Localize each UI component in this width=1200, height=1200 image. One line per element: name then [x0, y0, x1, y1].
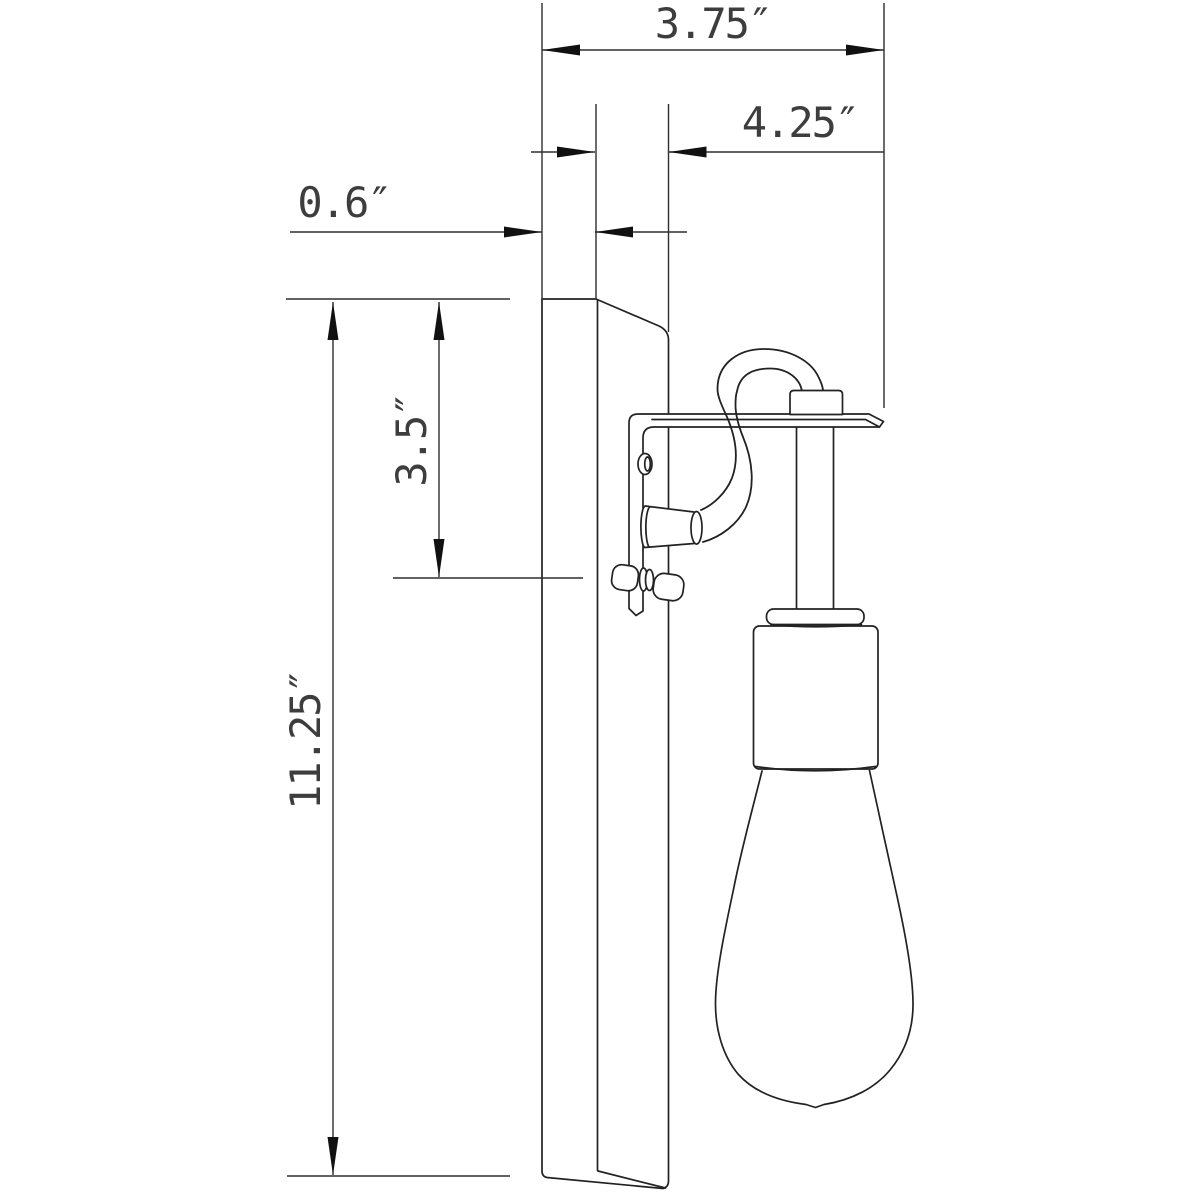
- edison-bulb: [715, 771, 913, 1108]
- dimension-projection: 4.25″: [531, 98, 884, 158]
- technical-drawing-page: 3.75″ 4.25″ 0.6″ 3.5″: [0, 0, 1200, 1200]
- ferrule-body: [641, 506, 699, 548]
- right-screw: [652, 572, 685, 602]
- left-screw: [610, 564, 639, 592]
- socket-stem: [797, 428, 834, 610]
- cord-grip-block: [790, 391, 843, 415]
- wall-backplate: [542, 299, 669, 1189]
- cord-outer-edge: [701, 349, 823, 510]
- arrowhead-up: [434, 302, 445, 340]
- dimension-top-to-bracket: 3.5″: [387, 302, 445, 577]
- arrowhead-down: [434, 539, 445, 577]
- dimension-label-backplate-thickness: 0.6″: [297, 178, 390, 227]
- sconce-fixture: [542, 299, 913, 1189]
- looped-power-cord: [701, 349, 823, 542]
- dimension-label-projection: 4.25″: [742, 98, 858, 147]
- arrowhead-up: [328, 302, 339, 340]
- socket-flange: [767, 609, 865, 625]
- arrowhead-down: [328, 1137, 339, 1175]
- dimension-backplate-thickness: 0.6″: [290, 178, 687, 238]
- upper-screw-detail: [645, 457, 651, 471]
- ferrule-mouth: [691, 512, 702, 545]
- wall-sconce-dimension-drawing: 3.75″ 4.25″ 0.6″ 3.5″: [0, 0, 1200, 1200]
- arrowhead-right: [846, 45, 884, 56]
- arrowhead-left: [504, 227, 542, 238]
- dimension-label-top-to-bracket: 3.5″: [387, 393, 436, 486]
- screw-washer-inner: [646, 570, 654, 591]
- arrowhead-right: [595, 227, 633, 238]
- arrowhead-left: [542, 45, 580, 56]
- cord-ferrule: [641, 506, 702, 548]
- dimension-backplate-height: 11.25″: [281, 302, 339, 1175]
- dimension-label-total-depth: 3.75″: [655, 0, 771, 48]
- dimension-total-depth: 3.75″: [542, 0, 884, 56]
- backplate-outline: [542, 299, 669, 1189]
- lamp-socket: [754, 626, 879, 769]
- arrowhead-right: [669, 147, 707, 158]
- arrowhead-left: [557, 147, 595, 158]
- dimension-label-backplate-height: 11.25″: [281, 670, 330, 810]
